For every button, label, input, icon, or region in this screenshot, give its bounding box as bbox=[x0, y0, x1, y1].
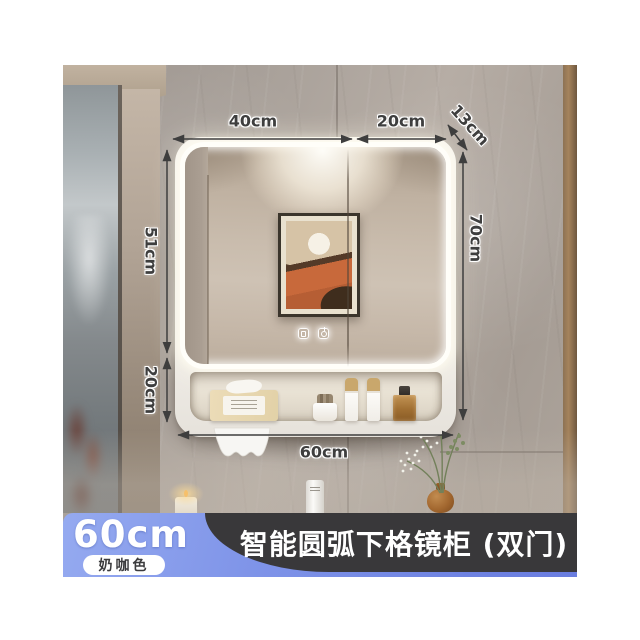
defog-icon bbox=[301, 331, 306, 337]
power-icon bbox=[321, 331, 327, 337]
perfume-bottle bbox=[393, 395, 416, 421]
mirror-reflection-corner bbox=[207, 175, 209, 364]
power-button bbox=[318, 328, 329, 339]
dim-shelf-height: 20cm bbox=[142, 366, 161, 414]
faucet bbox=[306, 480, 324, 513]
dim-total-height: 70cm bbox=[467, 214, 486, 262]
dim-top-width-right: 20cm bbox=[377, 112, 425, 131]
led-mirror bbox=[180, 142, 451, 369]
bathroom-photo: 40cm 20cm 13cm 51cm 20cm 70cm 60cm 智能圆弧下… bbox=[63, 65, 577, 577]
dim-mirror-height: 51cm bbox=[142, 227, 161, 275]
artwork bbox=[286, 221, 352, 309]
tissue-box-label bbox=[223, 396, 265, 415]
tile-seam bbox=[336, 65, 338, 141]
dim-top-width-left: 40cm bbox=[229, 112, 277, 131]
product-image: 40cm 20cm 13cm 51cm 20cm 70cm 60cm 智能圆弧下… bbox=[0, 0, 640, 640]
door-seam bbox=[347, 149, 349, 367]
defog-button bbox=[298, 328, 309, 339]
product-title: 智能圆弧下格镜柜 (双门) bbox=[240, 523, 568, 563]
spray-bottle bbox=[345, 378, 358, 421]
cotton-jar bbox=[313, 403, 337, 421]
glass-reflection bbox=[67, 215, 111, 325]
spray-bottle bbox=[367, 378, 380, 421]
size-badge: 60cm bbox=[67, 513, 195, 556]
dim-depth: 13cm bbox=[447, 101, 494, 150]
candle bbox=[175, 497, 197, 513]
banner-title-band: 智能圆弧下格镜柜 (双门) bbox=[205, 513, 577, 572]
dim-total-width: 60cm bbox=[300, 443, 348, 462]
scalloped-cup bbox=[212, 427, 272, 458]
mirror-reflection-wall bbox=[185, 147, 208, 364]
color-badge: 奶咖色 bbox=[83, 555, 165, 575]
banner: 智能圆弧下格镜柜 (双门) 60cm 奶咖色 bbox=[63, 513, 577, 577]
flowers bbox=[393, 423, 498, 495]
